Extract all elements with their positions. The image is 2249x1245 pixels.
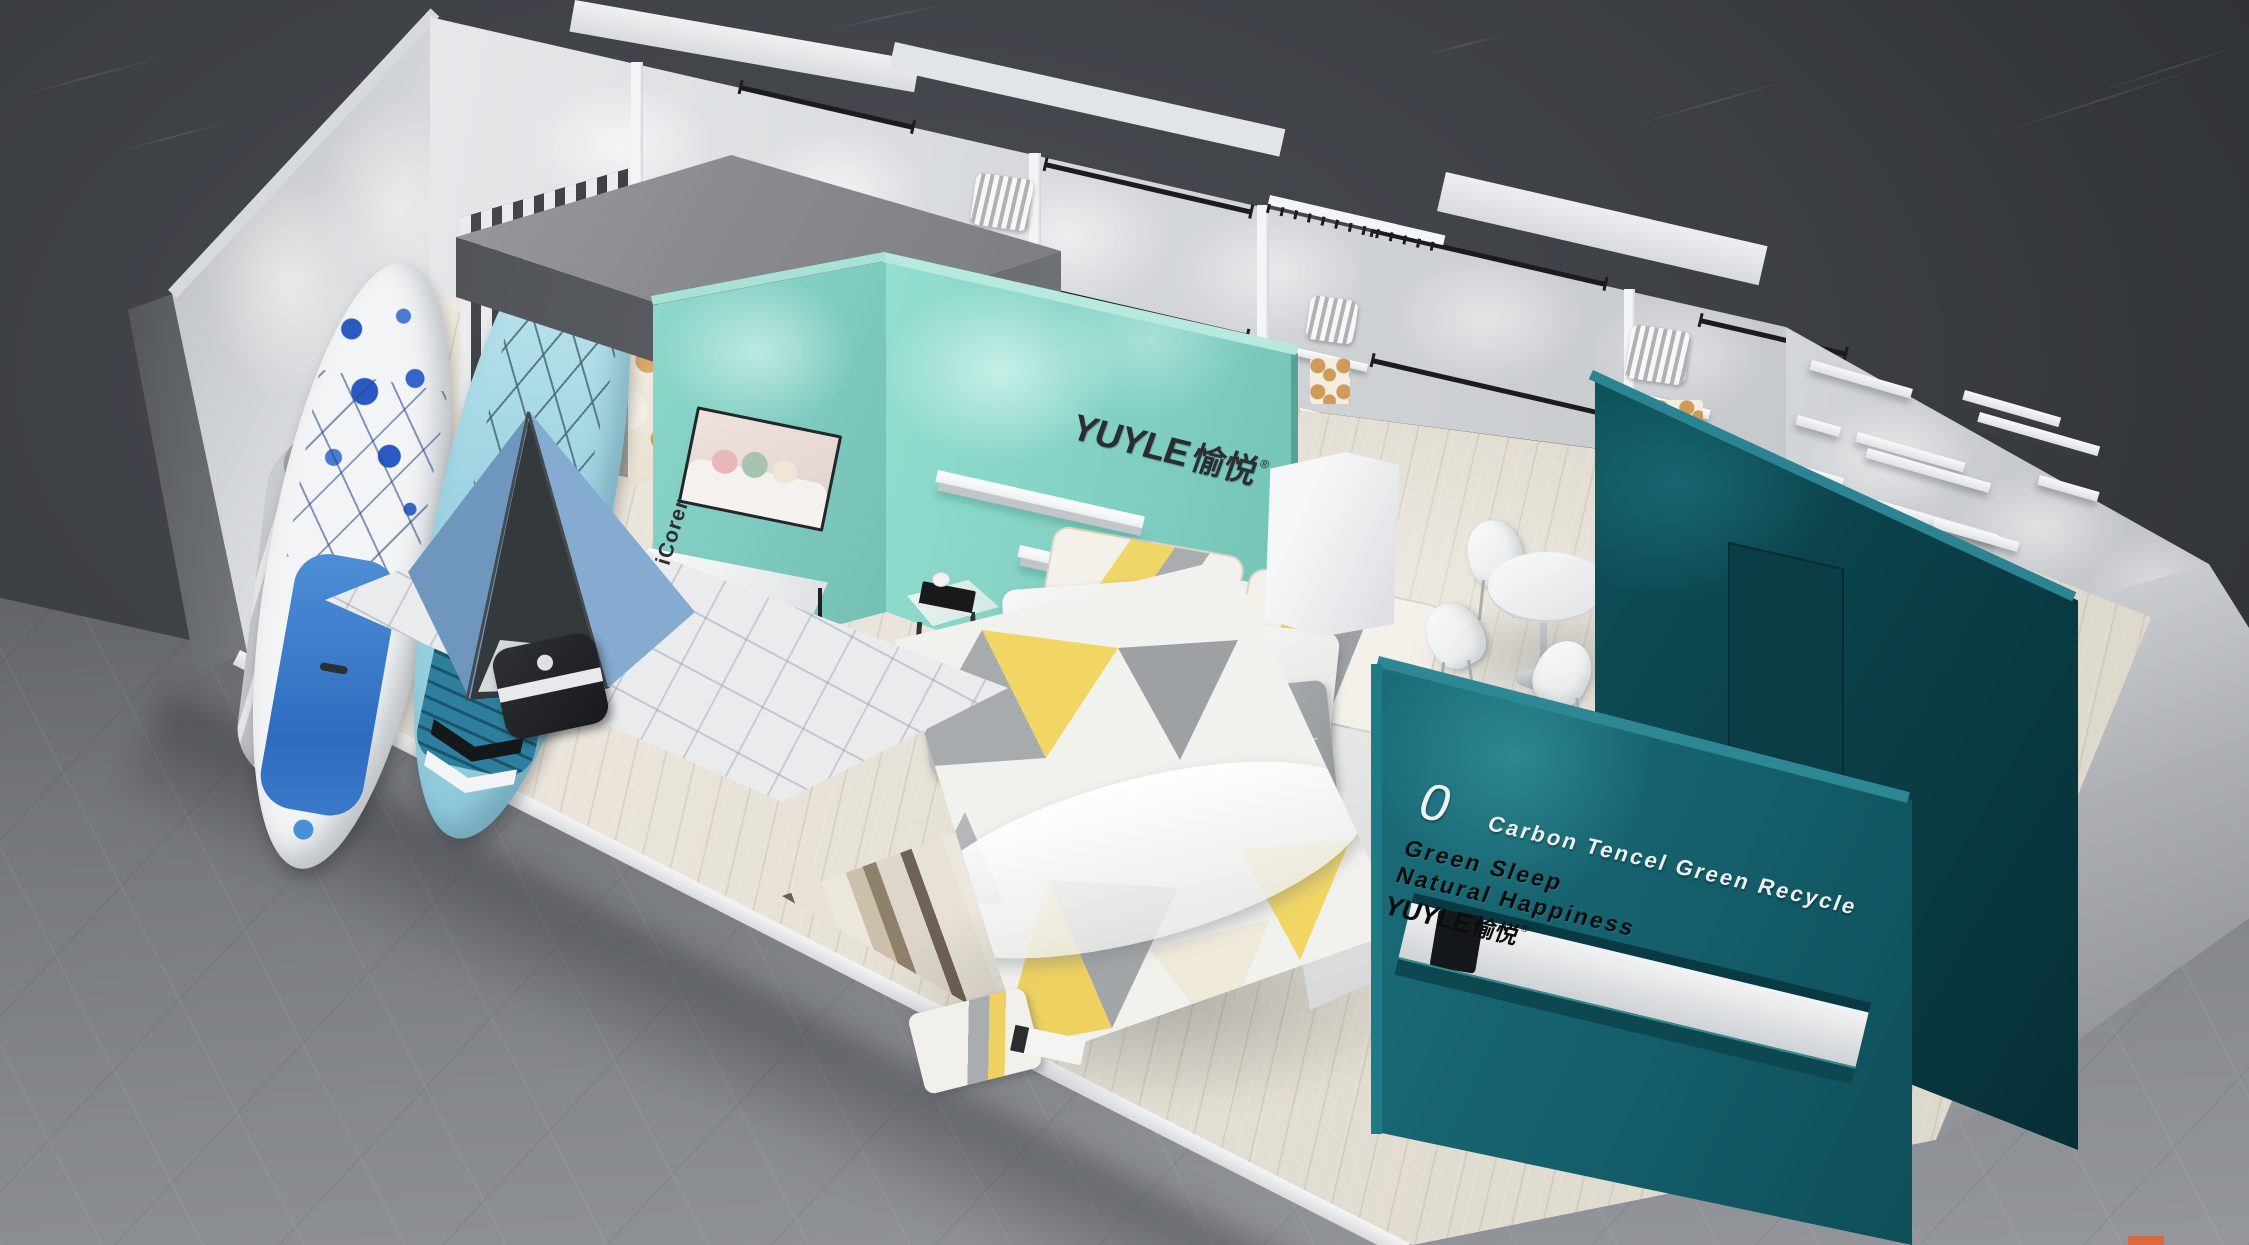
dining-table-top bbox=[1488, 552, 1606, 620]
cup bbox=[932, 572, 950, 587]
reception-wall-side-edge bbox=[1371, 664, 1382, 1134]
duffel-strap bbox=[497, 667, 603, 703]
watermark-fragment bbox=[2128, 1236, 2164, 1245]
background-streak bbox=[1420, 33, 1508, 57]
paddleboard-valve bbox=[292, 818, 315, 841]
booth-render-scene: SHOULDER 64" 52" HIP YUYLE愉悦® bbox=[0, 0, 2249, 1245]
display-pillow-striped bbox=[1625, 324, 1692, 386]
display-textile-dotted bbox=[1310, 358, 1350, 404]
display-pillow-striped bbox=[970, 172, 1035, 232]
background-streak bbox=[2100, 44, 2243, 92]
display-pillow-striped bbox=[1305, 295, 1359, 345]
background-streak bbox=[120, 122, 227, 152]
duffel-logo-icon bbox=[536, 653, 555, 672]
background-streak bbox=[1630, 78, 1794, 127]
display-plinth bbox=[1262, 452, 1402, 637]
background-streak bbox=[1990, 64, 2209, 137]
background-streak bbox=[18, 56, 163, 97]
background-streak bbox=[830, 3, 948, 30]
